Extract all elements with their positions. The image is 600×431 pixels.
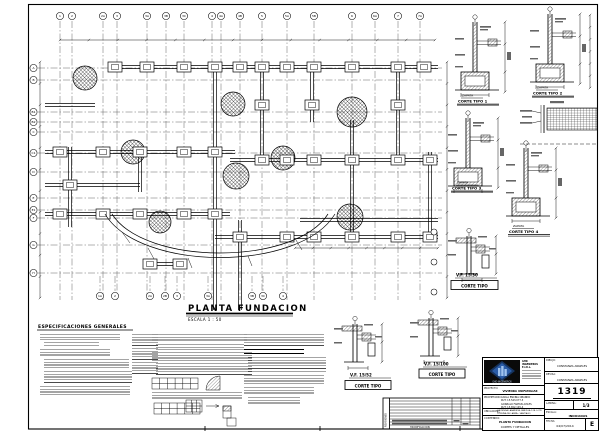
grid-bubble: 7 xyxy=(394,12,401,19)
grid-bubble: 5B xyxy=(310,12,317,19)
grid-bubble: A xyxy=(30,64,37,71)
sheet-number: 1319 xyxy=(545,387,599,397)
svg-text:4: 4 xyxy=(211,14,213,18)
lamina-cell: LAMINA: 1/3 xyxy=(545,400,599,409)
revision-table: REVISIONES MODIFICACION xyxy=(383,398,480,429)
grid-bubble: 3B xyxy=(162,12,169,19)
grid-bubble: 3A xyxy=(204,292,211,299)
grid-bubble: 2A xyxy=(146,292,153,299)
grid-bubble: 6 xyxy=(348,12,355,19)
grid-bubble: 2 xyxy=(68,12,75,19)
svg-text:V.F. 15/100: V.F. 15/100 xyxy=(424,362,449,367)
svg-text:CORTE TIPO 2: CORTE TIPO 2 xyxy=(533,91,563,96)
svg-text:3: 3 xyxy=(176,294,178,298)
grid-bubble: B1 xyxy=(30,108,37,115)
title-block: GHD INGENIEROS GHD INGENIEROS E.I.R.L. P… xyxy=(482,357,599,431)
grid-bubble: 4A xyxy=(217,12,224,19)
detail-wall-band xyxy=(520,101,597,144)
svg-text:3C: 3C xyxy=(182,14,186,18)
revision-letter: E xyxy=(585,421,599,428)
dibujo-cell: DIBUJO: CONSTANZA ANGELES xyxy=(545,358,599,371)
grid-bubble: F xyxy=(30,214,37,221)
svg-text:3B: 3B xyxy=(164,14,168,18)
detail-zapata-4: ZAPATA CORTE TIPO 4 xyxy=(506,141,562,236)
grid-bubble: E xyxy=(30,194,37,201)
svg-text:4: 4 xyxy=(282,294,284,298)
contenido-row: CONTENIDO: PLANTA FUNDACION CORTES Y DET… xyxy=(483,415,544,430)
grid-bubble: 4 xyxy=(279,292,286,299)
svg-text:2B: 2B xyxy=(163,294,167,298)
grid-bubble: 6A xyxy=(371,12,378,19)
svg-text:CORTE TIPO: CORTE TIPO xyxy=(355,383,382,388)
svg-text:5: 5 xyxy=(261,14,263,18)
svg-text:F: F xyxy=(33,216,35,220)
revision-side-label: REVISIONES xyxy=(385,413,388,427)
grid-bubble: 3A xyxy=(143,12,150,19)
svg-text:ZAPATA: ZAPATA xyxy=(462,94,474,98)
svg-text:5B: 5B xyxy=(312,14,316,18)
grid-bubble: D xyxy=(30,168,37,175)
fecha-cell: FECHA: 04/07/2014 E xyxy=(545,418,599,430)
grid-bubble: 2A xyxy=(99,12,106,19)
company-logo: GHD INGENIEROS xyxy=(484,360,520,383)
svg-text:ESPECIFICACIONES GENERALES: ESPECIFICACIONES GENERALES xyxy=(38,324,127,330)
svg-text:6: 6 xyxy=(351,14,353,18)
title-block-right: DIBUJO: CONSTANZA ANGELES REVISA: CONSTA… xyxy=(544,358,598,430)
detail-zapata-2: ZAPATA CORTE TIPO 2 xyxy=(530,7,586,98)
svg-text:B2: B2 xyxy=(32,120,36,124)
svg-text:ZAPATA: ZAPATA xyxy=(513,224,525,228)
detail-zapata-1: ZAPATA CORTE TIPO 1 xyxy=(455,15,511,106)
plan-title: PLANTA FUNDACION ESCALA 1 : 50 xyxy=(186,304,308,322)
grid-bubble: 3C xyxy=(259,292,266,299)
grid-bubble: 5A xyxy=(283,12,290,19)
svg-text:H: H xyxy=(32,271,34,275)
detail-vf-15-30: V.F. 15/30 CORTE TIPO xyxy=(448,228,498,289)
svg-text:ZAPATA: ZAPATA xyxy=(457,181,469,185)
revision-footer-label: MODIFICACION xyxy=(410,425,429,429)
grid-bubble: E1 xyxy=(30,206,37,213)
detail-zapata-3: ZAPATA CORTE TIPO 3 xyxy=(448,111,504,193)
ubicacion-row: UBICACION: HACIENDA LARAPINTA, PARCELA 1… xyxy=(483,408,544,415)
grid-bubble: H xyxy=(30,269,37,276)
detail-vf-15-100: V.F. 15/100 CORTE TIPO xyxy=(410,310,467,378)
footing-pads xyxy=(53,62,437,269)
svg-text:V.F. 15/52: V.F. 15/52 xyxy=(350,373,372,378)
svg-text:1: 1 xyxy=(59,14,61,18)
drawing-sheet: 122A33A3B3C44A4B55A5B66A77AABB1B2CC1DEE1… xyxy=(0,0,600,431)
grid-bubble: 4B xyxy=(236,12,243,19)
svg-text:CORTE TIPO 4: CORTE TIPO 4 xyxy=(509,229,539,234)
plan-title-text: PLANTA FUNDACION xyxy=(188,304,308,314)
svg-text:CORTE TIPO: CORTE TIPO xyxy=(429,372,456,377)
svg-text:B: B xyxy=(32,78,34,82)
grid-bubble: 3B xyxy=(248,292,255,299)
grid-bubble: B2 xyxy=(30,118,37,125)
grid-bubble: 4 xyxy=(208,12,215,19)
svg-text:C1: C1 xyxy=(31,151,35,155)
grid-bubble: 5 xyxy=(258,12,265,19)
proyecto-row: PROYECTO: VIVIENDA UNIFAMILIAR xyxy=(483,385,544,394)
grid-bubble: 7A xyxy=(416,12,423,19)
company-info: GHD INGENIEROS E.I.R.L. xyxy=(522,360,543,383)
grid-bubbles: 122A33A3B3C44A4B55A5B66A77AABB1B2CC1DEE1… xyxy=(30,12,424,299)
grid-bubble: G xyxy=(30,241,37,248)
svg-text:CORTE TIPO 3: CORTE TIPO 3 xyxy=(452,186,482,191)
grid-bubble: 2B xyxy=(161,292,168,299)
svg-text:B1: B1 xyxy=(32,110,36,114)
revisa-cell: REVISA: CONSTANZA ANGELES xyxy=(545,371,599,383)
grid-bubble: 2 xyxy=(111,292,118,299)
grid-bubble: C xyxy=(30,128,37,135)
svg-text:CORTE TIPO: CORTE TIPO xyxy=(461,283,488,288)
grid-bubble: 3 xyxy=(113,12,120,19)
svg-text:3: 3 xyxy=(116,14,118,18)
svg-text:C: C xyxy=(32,130,34,134)
svg-text:3B: 3B xyxy=(250,294,254,298)
svg-text:7: 7 xyxy=(397,14,399,18)
svg-text:2: 2 xyxy=(114,294,116,298)
logo-caption: GHD INGENIEROS xyxy=(492,380,512,383)
svg-text:E: E xyxy=(33,196,35,200)
grid-bubble: B xyxy=(30,76,37,83)
curved-foundation xyxy=(105,214,335,268)
notes-mini-tables xyxy=(152,376,236,426)
grid-bubble: 1A xyxy=(96,292,103,299)
grid-bubble: 3 xyxy=(173,292,180,299)
grid-bubble: C1 xyxy=(30,149,37,156)
svg-text:4B: 4B xyxy=(238,14,242,18)
detail-vf-15-52: V.F. 15/52 CORTE TIPO xyxy=(334,316,391,389)
svg-text:ZAPATA: ZAPATA xyxy=(537,86,549,90)
escala-cell: ESCALA: INDICADAS xyxy=(545,409,599,418)
grid-bubble: 3C xyxy=(180,12,187,19)
svg-text:2: 2 xyxy=(71,14,73,18)
plan-scale-text: ESCALA 1 : 50 xyxy=(188,317,222,322)
svg-text:CORTE TIPO 1: CORTE TIPO 1 xyxy=(458,99,488,104)
propietario-row: PROPIETARIO: CARLA ENCINA OBANDO RUT: 15… xyxy=(483,394,544,408)
specs-heading: ESPECIFICACIONES GENERALES xyxy=(37,324,133,330)
sheet-number-cell: 1319 xyxy=(545,383,599,400)
svg-text:V.F. 15/30: V.F. 15/30 xyxy=(456,273,478,278)
svg-text:E1: E1 xyxy=(32,208,36,212)
grid-bubble: 1 xyxy=(56,12,63,19)
svg-text:3C: 3C xyxy=(261,294,265,298)
